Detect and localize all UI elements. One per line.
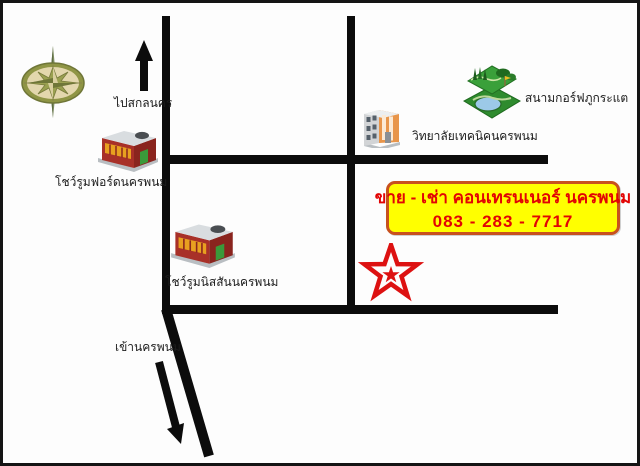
- nissan-showroom-building-icon: [169, 214, 237, 271]
- label-nissan-showroom: โชว์รูมนิสสันนครพนม: [165, 273, 278, 292]
- label-golf-course: สนามกอร์ฟภูกระแต: [525, 89, 628, 108]
- label-city-entrance: เข้านครพนม: [115, 338, 181, 357]
- label-technical-college: วิทยาลัยเทคนิคนครพนม: [412, 127, 538, 146]
- ad-banner: ขาย - เช่า คอนเทรนเนอร์ นครพนม 083 - 283…: [386, 181, 620, 235]
- ford-showroom-building-icon: [96, 121, 160, 175]
- compass-rose-icon: [20, 45, 86, 119]
- label-ford-showroom: โชว์รูมฟอร์ดนครพนม: [55, 173, 167, 192]
- road-horizontal-lower: [162, 305, 558, 314]
- golf-course-icon: [463, 64, 521, 122]
- ad-banner-phone: 083 - 283 - 7717: [433, 212, 574, 232]
- north-arrow-icon: [135, 40, 153, 91]
- location-star-icon: [358, 243, 424, 303]
- road-horizontal-middle: [162, 155, 548, 164]
- map-canvas: ขาย - เช่า คอนเทรนเนอร์ นครพนม 083 - 283…: [0, 0, 640, 466]
- label-to-sakon-nakhon: ไปสกลนคร: [114, 94, 172, 113]
- ad-banner-title: ขาย - เช่า คอนเทรนเนอร์ นครพนม: [375, 184, 631, 211]
- technical-college-building-icon: [361, 102, 403, 148]
